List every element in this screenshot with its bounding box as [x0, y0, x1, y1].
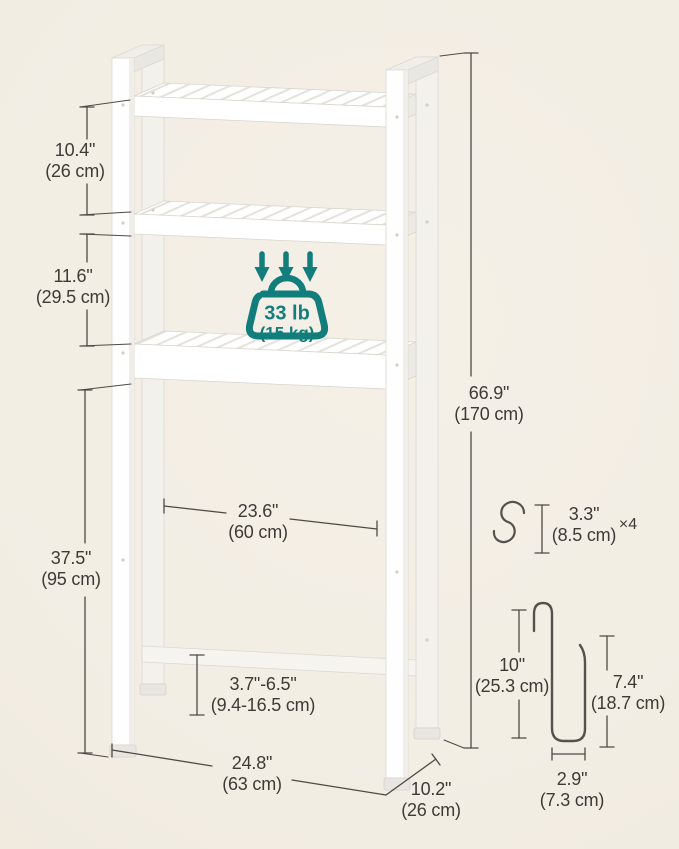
dimension-metric: (8.5 cm) [552, 525, 616, 546]
dimension-metric: (26 cm) [45, 161, 105, 182]
dimension-metric: (18.7 cm) [591, 693, 665, 714]
dimension-label-clearance: 37.5" (95 cm) [41, 548, 101, 590]
dimension-inches: 10" [475, 655, 549, 676]
dimension-label-gap-mid: 11.6" (29.5 cm) [36, 266, 110, 308]
dim-line-door-hook-width [552, 748, 585, 760]
dimension-metric: (9.4-16.5 cm) [211, 695, 315, 716]
dimension-label-door-hook-height: 10" (25.3 cm) [475, 655, 549, 697]
weight-capacity-unit: (15 kg) [260, 325, 315, 343]
dimension-label-door-hook-drop: 7.4" (18.7 cm) [591, 672, 665, 714]
dimension-metric: (95 cm) [41, 569, 101, 590]
dimension-inches: 7.4" [591, 672, 665, 693]
product-dimension-diagram: 33 lb (15 kg) 10.4" (26 cm) 11.6" (29.5 … [0, 0, 679, 849]
dimension-metric: (26 cm) [401, 800, 461, 821]
dimension-label-gap-top: 10.4" (26 cm) [45, 140, 105, 182]
dimension-label-door-hook-width: 2.9" (7.3 cm) [540, 769, 604, 811]
s-hook-quantity: ×4 [619, 516, 637, 534]
dimension-label-inner-width: 23.6" (60 cm) [228, 501, 288, 543]
shelf-top [134, 83, 416, 127]
dimension-label-feet-range: 3.7"-6.5" (9.4-16.5 cm) [211, 674, 315, 716]
dimension-inches: 66.9" [454, 383, 523, 404]
rack-crossbar [142, 646, 416, 676]
dimension-metric: (25.3 cm) [475, 676, 549, 697]
dimension-label-height: 66.9" (170 cm) [454, 383, 523, 425]
dimension-metric: (63 cm) [222, 774, 282, 795]
dim-line-s-hook [535, 505, 549, 553]
dimension-inches: 10.2" [401, 779, 461, 800]
s-hook-icon [494, 502, 524, 542]
dimension-inches: 3.3" [552, 504, 616, 525]
dimension-label-s-hook: 3.3" (8.5 cm) [552, 504, 616, 546]
dimension-inches: 24.8" [222, 753, 282, 774]
dimension-inches: 2.9" [540, 769, 604, 790]
weight-capacity-value: 33 lb [260, 304, 315, 325]
dimension-inches: 10.4" [45, 140, 105, 161]
diagram-canvas [0, 0, 679, 849]
dimension-label-depth: 10.2" (26 cm) [401, 779, 461, 821]
dimension-metric: (170 cm) [454, 404, 523, 425]
dimension-inches: 3.7"-6.5" [211, 674, 315, 695]
dimension-label-width: 24.8" (63 cm) [222, 753, 282, 795]
weight-capacity-label: 33 lb (15 kg) [260, 304, 315, 343]
dimension-inches: 11.6" [36, 266, 110, 287]
dimension-metric: (7.3 cm) [540, 790, 604, 811]
shelf-middle [134, 201, 416, 245]
dimension-metric: (60 cm) [228, 522, 288, 543]
dimension-metric: (29.5 cm) [36, 287, 110, 308]
dimension-inches: 23.6" [228, 501, 288, 522]
dimension-inches: 37.5" [41, 548, 101, 569]
